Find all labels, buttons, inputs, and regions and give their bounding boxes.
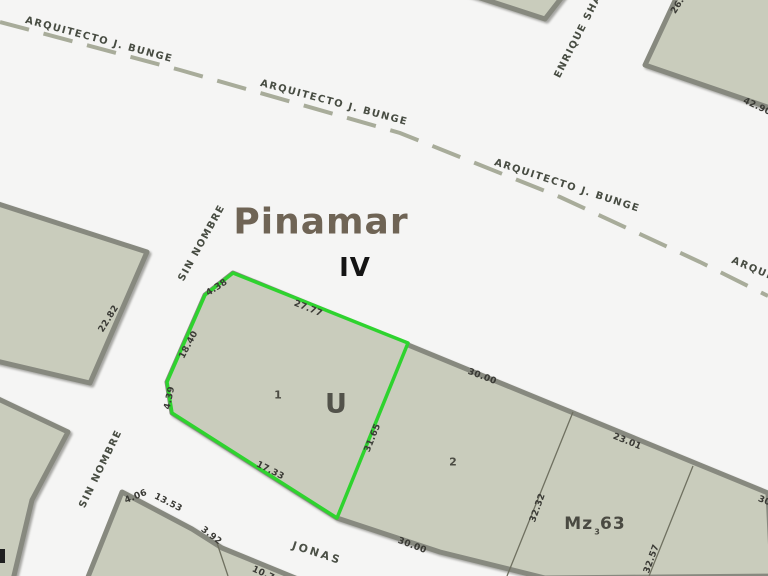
neighbor-parcel-number: 2 — [449, 456, 457, 469]
map-canvas[interactable]: Pinamar IV ARQUITECTO J. BUNGE ARQUITECT… — [0, 0, 768, 576]
selected-parcel-letter: U — [325, 389, 347, 420]
parcel-polygon-top-small — [462, 0, 566, 19]
parcel-polygon-bottom-left-block — [86, 492, 305, 576]
selected-parcel-number: 1 — [274, 389, 282, 402]
map-edge-artifact — [0, 549, 5, 563]
section-title: IV — [339, 253, 371, 283]
parcel-polygon-left-block — [0, 202, 147, 383]
block-parcel-number: 3 — [594, 528, 600, 537]
parcel-polygon-top-right — [645, 0, 768, 110]
parcel-layer — [0, 0, 768, 576]
parcel-polygon-left-lower-block — [0, 396, 68, 576]
city-title: Pinamar — [233, 202, 408, 243]
